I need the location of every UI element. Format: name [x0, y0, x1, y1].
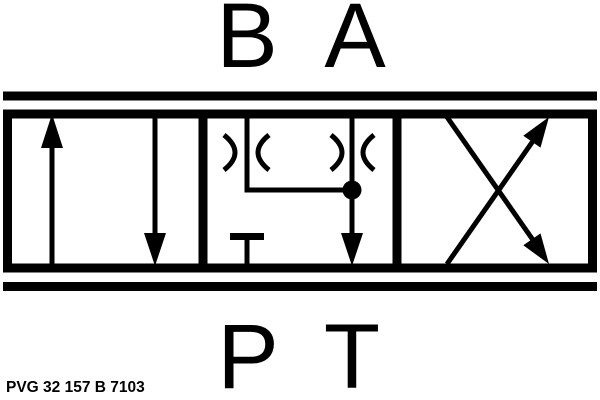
port-label-t: T: [324, 306, 380, 400]
valve-schematic: B A: [0, 0, 600, 400]
valve-diagram-page: B A: [0, 0, 600, 400]
orifice-arc-icon: [363, 135, 374, 170]
position-center-float: [224, 111, 374, 268]
orifice-arc-icon: [224, 135, 235, 170]
up-arrow-icon: [41, 114, 63, 266]
port-label-b: B: [216, 0, 277, 87]
orifice-arc-icon: [258, 135, 269, 170]
down-arrow-icon: [144, 112, 166, 266]
port-label-a: A: [324, 0, 386, 87]
orifice-arc-icon: [331, 135, 342, 170]
position-right-crossed-arrows: [447, 117, 549, 264]
part-number: PVG 32 157 B 7103: [6, 379, 145, 396]
port-label-p: P: [217, 306, 278, 400]
position-left-parallel-arrows: [41, 112, 166, 266]
b-to-tank-elbow-line: [247, 111, 352, 190]
blocked-port-icon: [230, 237, 264, 269]
